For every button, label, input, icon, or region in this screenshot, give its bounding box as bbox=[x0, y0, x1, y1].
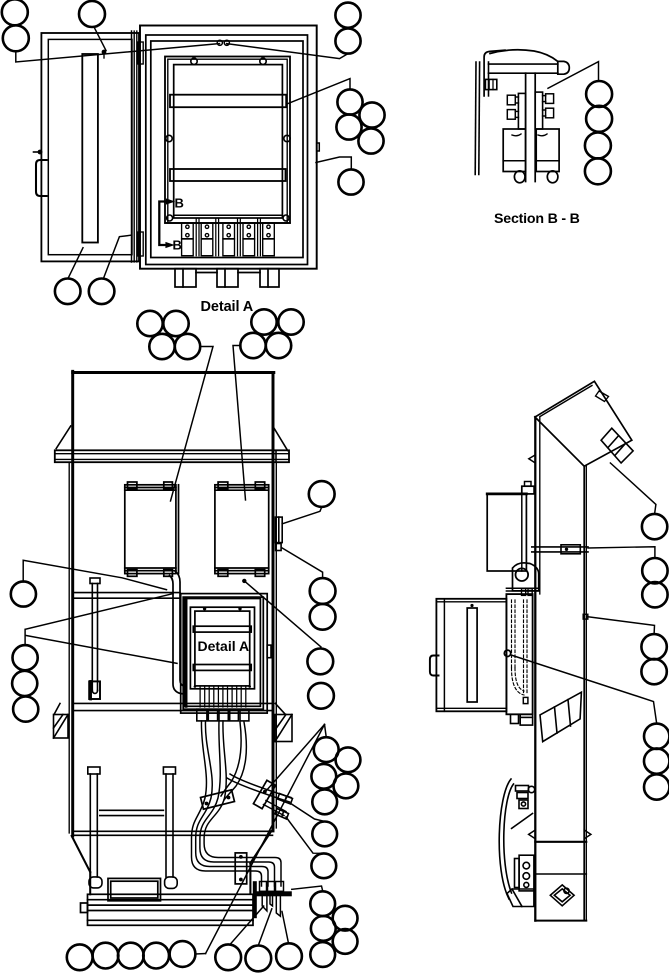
svg-text:Detail A: Detail A bbox=[201, 299, 254, 315]
svg-text:B: B bbox=[175, 196, 184, 211]
svg-text:Section B - B: Section B - B bbox=[494, 211, 580, 227]
svg-text:Detail A: Detail A bbox=[198, 638, 250, 654]
